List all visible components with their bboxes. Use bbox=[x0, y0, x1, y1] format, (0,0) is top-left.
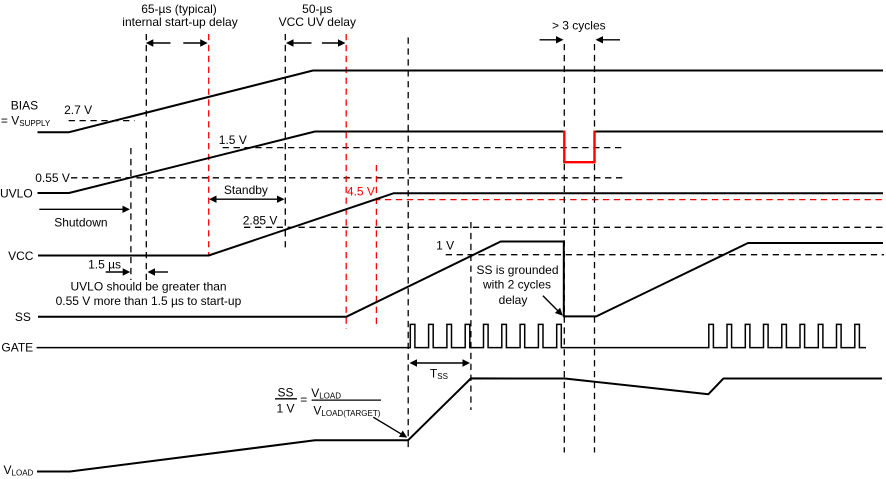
svg-text:VCC UV delay: VCC UV delay bbox=[279, 15, 356, 29]
svg-text:1 V: 1 V bbox=[436, 238, 454, 252]
svg-text:VCC: VCC bbox=[8, 249, 34, 263]
svg-text:SS: SS bbox=[15, 310, 31, 324]
svg-text:1.5 V: 1.5 V bbox=[219, 133, 247, 147]
svg-text:BIAS: BIAS bbox=[11, 98, 38, 112]
svg-text:SS: SS bbox=[277, 385, 293, 399]
svg-text:delay: delay bbox=[499, 293, 528, 307]
svg-text:GATE: GATE bbox=[1, 341, 33, 355]
svg-text:2.7 V: 2.7 V bbox=[64, 103, 92, 117]
svg-text:1.5 µs: 1.5 µs bbox=[88, 258, 121, 272]
svg-text:2.85 V: 2.85 V bbox=[243, 213, 278, 227]
svg-text:SS is grounded: SS is grounded bbox=[476, 263, 558, 277]
svg-text:Shutdown: Shutdown bbox=[54, 215, 107, 229]
svg-text:with 2 cycles: with 2 cycles bbox=[482, 278, 551, 292]
svg-text:4.5 V: 4.5 V bbox=[347, 185, 375, 199]
svg-text:UVLO should be greater than: UVLO should be greater than bbox=[71, 279, 227, 293]
svg-text:=: = bbox=[300, 392, 307, 406]
svg-text:0.55 V more than 1.5 µs to sta: 0.55 V more than 1.5 µs to start-up bbox=[56, 294, 242, 308]
svg-text:UVLO: UVLO bbox=[0, 187, 33, 201]
svg-text:0.55 V: 0.55 V bbox=[35, 171, 70, 185]
svg-text:> 3 cycles: > 3 cycles bbox=[552, 19, 606, 33]
svg-text:Standby: Standby bbox=[224, 183, 268, 197]
svg-text:internal start-up delay: internal start-up delay bbox=[122, 15, 237, 29]
svg-text:50-µs: 50-µs bbox=[302, 2, 332, 16]
svg-text:65-µs (typical): 65-µs (typical) bbox=[141, 2, 217, 16]
svg-text:1 V: 1 V bbox=[276, 402, 294, 416]
